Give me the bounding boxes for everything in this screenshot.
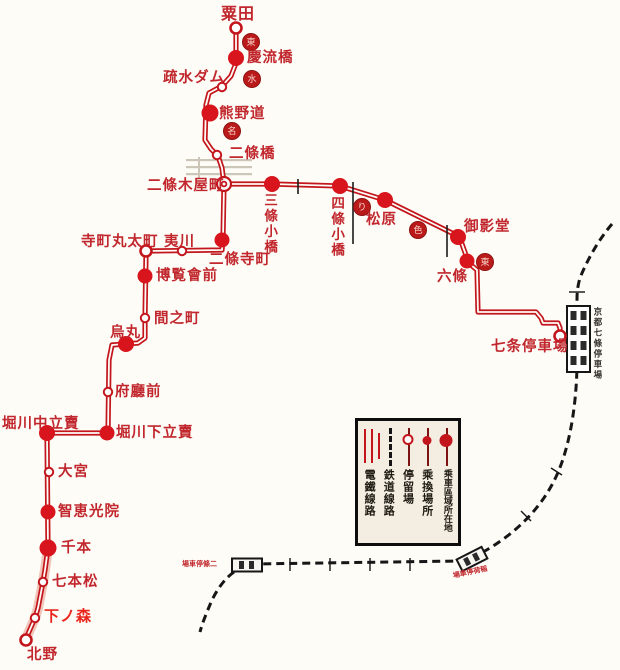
station-nijobashi: [213, 151, 221, 159]
legend-label: 鉄道線路: [383, 469, 394, 517]
transfer-small-circle-icon: [418, 425, 437, 469]
station-awata: [231, 23, 242, 34]
zone-marker-glyph: 名: [227, 125, 236, 137]
railway-station-box: [232, 559, 262, 572]
map-legend: 電鐵線路 鉄道線路 停留場 乘換場所: [355, 418, 461, 546]
zone-marker-glyph: 東: [480, 256, 489, 268]
station-shijo-kobashi: [332, 178, 348, 194]
tram-double-line-icon: [360, 425, 379, 469]
stop-open-circle-icon: [398, 425, 417, 469]
terminal-hatch: [571, 326, 577, 335]
zone-marker-glyph: 東: [246, 36, 255, 48]
zone-marker-glyph: 水: [247, 73, 256, 85]
railway-station-box-rect: [232, 559, 262, 572]
station-rokujo: [460, 254, 475, 269]
terminal-hatch: [581, 341, 587, 350]
box-hatch: [249, 561, 254, 569]
terminal-hatch: [571, 341, 577, 350]
terminal-hatch: [571, 356, 577, 365]
terminal-hatch: [581, 326, 587, 335]
zone-marker-glyph: 色: [413, 224, 422, 236]
station-sosui-dam: [218, 83, 226, 91]
station-mieido: [450, 229, 466, 245]
station-kumanomichi: [202, 105, 219, 122]
station-shichihonmatsu: [39, 578, 47, 586]
station-matsubara: [377, 192, 393, 208]
station-keiryubashi: [228, 50, 244, 66]
railway-station-box-rect: [457, 547, 488, 571]
terminal-hatch: [581, 356, 587, 365]
railway-station-box: [457, 547, 488, 571]
station-shichijo-teishajo: [555, 331, 566, 342]
station-horikawa-nakadachiuri: [39, 425, 55, 441]
legend-item-zone: 乘車區域所在地: [437, 425, 456, 541]
legend-item-tram-line: 電鐵線路: [360, 425, 379, 541]
station-hakurankai-mae: [138, 269, 153, 284]
legend-item-transfer: 乘換場所: [418, 425, 437, 541]
historic-kyoto-tram-map: 東水名り色東 粟田慶流橋疏水ダム熊野道二條橋二條木屋町三條小橋四條小橋松原御影堂…: [0, 0, 620, 670]
station-horikawa-shimodachiuri: [100, 426, 115, 441]
station-sanjo-kobashi: [264, 176, 280, 192]
station-chiekoin: [41, 505, 56, 520]
station-omiya: [45, 468, 53, 476]
terminal-hatch: [571, 311, 577, 320]
legend-item-stop: 停留場: [398, 425, 417, 541]
zone-large-circle-icon: [437, 425, 456, 469]
railway-terminal-box: [567, 306, 590, 372]
box-hatch: [239, 561, 244, 569]
legend-label: 電鐵線路: [364, 469, 375, 517]
station-teramachi-marutamachi: [141, 246, 152, 257]
tram-line-east-core: [224, 184, 560, 335]
station-fucho-mae: [104, 388, 112, 396]
station-nijo-kiyamachi-inner: [222, 182, 227, 187]
station-ebisugawa: [178, 247, 186, 255]
legend-label: 乘車區域所在地: [442, 469, 451, 532]
legend-label: 乘換場所: [422, 469, 433, 517]
bridge-hatch: [186, 173, 252, 175]
station-ainomachi: [141, 314, 149, 322]
station-nijo-teramachi: [215, 233, 230, 248]
legend-item-railway-line: 鉄道線路: [379, 425, 398, 541]
tram-line-west: [26, 28, 236, 641]
terminal-hatch: [581, 311, 587, 320]
bridge-hatch: [198, 157, 200, 178]
station-karasuma: [118, 336, 134, 352]
station-kitano: [21, 635, 32, 646]
station-shimonomori: [31, 614, 39, 622]
railway-dashed-line-icon: [379, 425, 398, 469]
legend-label: 停留場: [403, 469, 414, 505]
zone-marker-glyph: り: [357, 202, 366, 213]
route-map-canvas: 東水名り色東: [0, 0, 620, 670]
station-senbon: [40, 540, 57, 557]
